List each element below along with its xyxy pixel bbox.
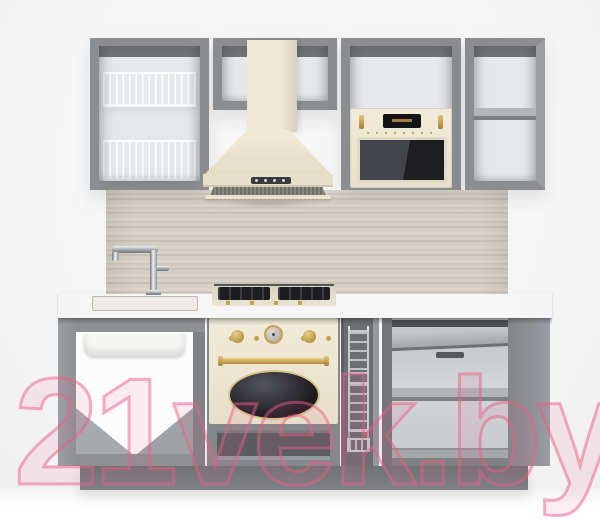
cabinet-top-panel (350, 46, 452, 57)
microwave-knob-left (359, 115, 364, 129)
dish-rack-upper (103, 72, 196, 104)
hob-grate-left (218, 287, 270, 300)
oven-knob-left (231, 330, 244, 343)
faucet-lever (156, 266, 169, 271)
cabinet-top-panel (99, 46, 200, 57)
faucet-base (146, 290, 161, 295)
microwave-display (383, 114, 421, 128)
microwave-knob-right (438, 115, 443, 129)
hood-duct (247, 40, 297, 132)
microwave-door-glass (357, 137, 447, 183)
hood-shadow (212, 199, 324, 208)
gas-hob (212, 286, 336, 306)
microwave-button-row (367, 132, 437, 134)
dish-rack-lower (103, 140, 196, 178)
oven-knob-right (303, 330, 316, 343)
faucet-spout-tip (112, 252, 119, 261)
sink-inset (92, 296, 198, 311)
watermark: 21vek.by (14, 356, 600, 508)
hob-grate-right (278, 287, 330, 300)
wall-cabinet-dish-rack (90, 38, 209, 190)
cabinet-top-panel (474, 46, 536, 57)
faucet-riser (150, 250, 157, 294)
hob-burner-knobs (226, 301, 322, 305)
oven-clock (264, 325, 283, 344)
wall-cabinet-shelf (474, 108, 536, 120)
hood-canopy (203, 130, 333, 176)
microwave (350, 108, 452, 188)
hood-control-buttons (251, 177, 291, 184)
undercounter-shadow (58, 318, 552, 325)
hood-bottom-lip (205, 195, 331, 199)
kitchen-product-image: 21vek.by (0, 0, 600, 520)
